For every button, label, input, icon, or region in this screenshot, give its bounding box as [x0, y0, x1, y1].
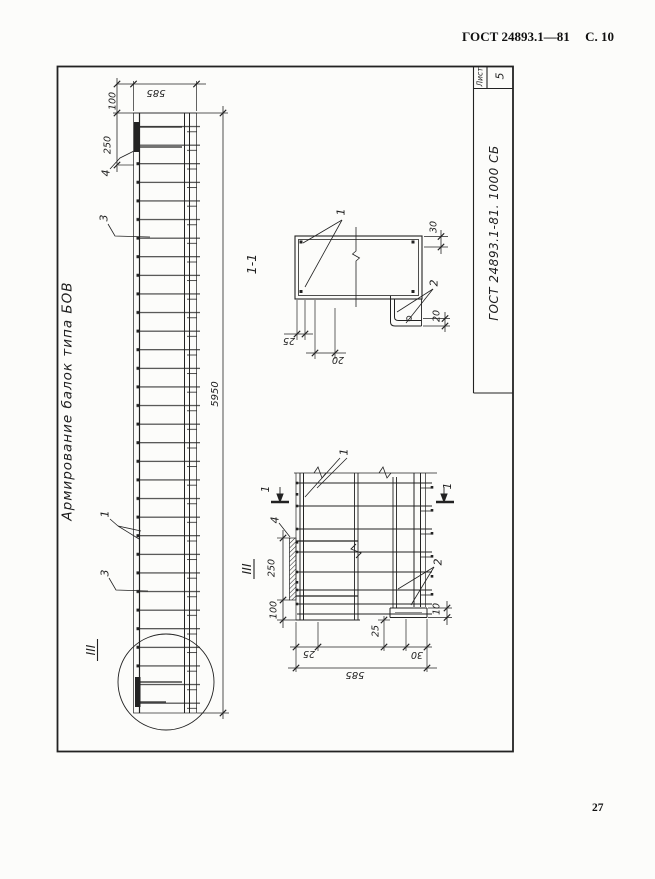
title-block-sheet-label: Лист [476, 67, 484, 86]
detail-dim-250: 250 [267, 559, 277, 577]
section-dim-25: 25 [283, 335, 295, 345]
beam-label-1: 1 [100, 511, 111, 518]
section-title-1-1: 1-1 [246, 254, 259, 274]
section-label-1: 1 [336, 209, 347, 216]
detail-iii [254, 458, 454, 672]
section-dim-30: 30 [429, 221, 439, 233]
dim-585-top: 585 [146, 87, 165, 97]
title-block-doc: ГОСТ 24893.1-81. 1000 СБ [488, 145, 500, 320]
detail-cut-label-left: 1 [261, 486, 272, 493]
scanned-sheet: ГОСТ 24893.1—81 С. 10 27 ГОСТ 24893.1-81… [0, 0, 655, 879]
drawing-title: Армирование балок типа БОВ [61, 281, 75, 520]
section-label-2: 2 [429, 280, 440, 287]
beam-detail-mark-iii: III [85, 645, 97, 656]
detail-dim-10: 10 [432, 603, 442, 615]
dim-5950: 5950 [211, 381, 221, 406]
page-header: ГОСТ 24893.1—81 С. 10 [462, 29, 614, 45]
detail-label-2: 2 [433, 559, 444, 566]
detail-dim-30-bottom: 30 [411, 649, 423, 659]
dim-250: 250 [103, 136, 113, 154]
detail-dim-25-side: 25 [371, 625, 381, 637]
section-1-1 [284, 220, 450, 359]
beam-label-3a: 3 [99, 215, 110, 222]
detail-title-iii: III [241, 563, 254, 574]
detail-dim-100: 100 [269, 601, 279, 619]
dim-100: 100 [108, 92, 118, 110]
drawing-canvas [0, 0, 655, 879]
page-ref: С. 10 [585, 29, 614, 45]
section-dim-20-right: 20 [432, 310, 442, 322]
detail-dim-585: 585 [345, 669, 364, 679]
standard-number: ГОСТ 24893.1—81 [462, 29, 570, 45]
detail-label-4: 4 [270, 517, 281, 524]
detail-dim-25-bottom: 25 [303, 648, 315, 658]
sheet-frame [58, 67, 514, 752]
detail-cut-label-right: 1 [443, 483, 454, 490]
page-number: 27 [592, 802, 604, 814]
detail-label-1: 1 [339, 449, 350, 456]
beam-label-3b: 3 [100, 570, 111, 577]
title-block-sheet-number: 5 [495, 73, 506, 80]
section-dim-20-bottom: 20 [332, 354, 344, 364]
beam-label-4: 4 [101, 170, 112, 177]
